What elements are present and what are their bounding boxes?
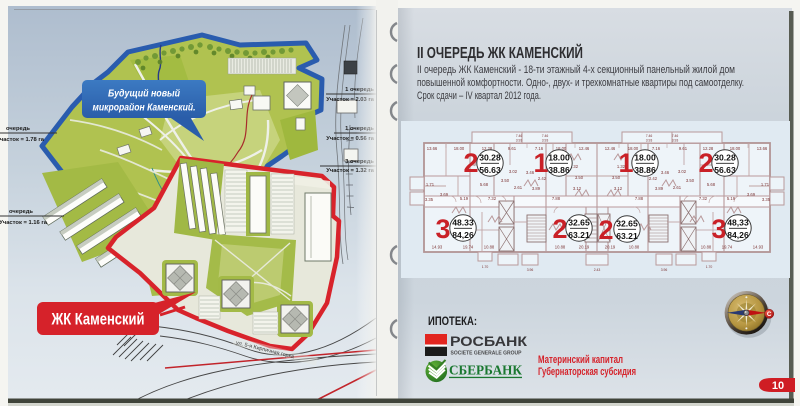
svg-text:18.00: 18.00 <box>548 153 570 163</box>
svg-text:1.71: 1.71 <box>426 182 435 187</box>
svg-text:C: C <box>767 311 772 318</box>
svg-text:32.65: 32.65 <box>616 219 638 229</box>
svg-text:3.02: 3.02 <box>678 169 687 174</box>
svg-text:2: 2 <box>698 148 713 178</box>
svg-text:3: 3 <box>435 214 450 244</box>
svg-text:14.93: 14.93 <box>432 245 443 250</box>
svg-text:1.71: 1.71 <box>761 182 770 187</box>
svg-text:9.61: 9.61 <box>508 146 517 151</box>
svg-text:2: 2 <box>598 215 613 245</box>
svg-text:3.50: 3.50 <box>575 175 584 180</box>
svg-text:РОСБАНК: РОСБАНК <box>450 334 528 349</box>
svg-text:84,26: 84,26 <box>727 230 749 240</box>
svg-text:Губернаторская субсидия: Губернаторская субсидия <box>538 366 636 378</box>
svg-text:3.93: 3.93 <box>672 139 679 143</box>
svg-text:12.46: 12.46 <box>605 146 616 151</box>
svg-text:3.93: 3.93 <box>646 139 653 143</box>
svg-text:7.46: 7.46 <box>516 134 523 138</box>
svg-text:12.46: 12.46 <box>579 146 590 151</box>
svg-text:3: 3 <box>711 214 726 244</box>
svg-text:3.89: 3.89 <box>532 186 541 191</box>
svg-text:7.46: 7.46 <box>646 134 653 138</box>
svg-text:Срок сдачи – IV квартал 2012 г: Срок сдачи – IV квартал 2012 года. <box>417 90 541 102</box>
svg-text:5.19: 5.19 <box>460 196 469 201</box>
svg-text:повышенной комфортности. Одно-: повышенной комфортности. Одно-, двух- и … <box>417 77 744 89</box>
svg-text:3.69: 3.69 <box>747 192 756 197</box>
svg-text:Участок = 1.16 га: Участок = 1.16 га <box>0 220 48 226</box>
svg-text:очередь: очередь <box>6 126 30 132</box>
svg-text:3.96: 3.96 <box>527 268 534 272</box>
svg-text:II очередь ЖК Каменский - 18-т: II очередь ЖК Каменский - 18-ти этажный … <box>417 64 735 76</box>
svg-text:20.19: 20.19 <box>579 245 590 250</box>
svg-text:3.12: 3.12 <box>573 186 582 191</box>
svg-text:30.28: 30.28 <box>479 153 501 163</box>
svg-text:32.65: 32.65 <box>568 218 590 228</box>
svg-text:5.68: 5.68 <box>707 182 716 187</box>
svg-text:84,26: 84,26 <box>452 230 474 240</box>
svg-text:2: 2 <box>463 148 478 178</box>
svg-text:56.63: 56.63 <box>714 165 736 175</box>
svg-text:63.21: 63.21 <box>616 231 638 241</box>
svg-text:3.46: 3.46 <box>661 170 670 175</box>
svg-text:2.43: 2.43 <box>594 268 601 272</box>
svg-text:II ОЧЕРЕДЬ ЖК КАМЕНСКИЙ: II ОЧЕРЕДЬ ЖК КАМЕНСКИЙ <box>417 44 583 62</box>
svg-text:SOCIETE GENERALE GROUP: SOCIETE GENERALE GROUP <box>451 351 523 357</box>
svg-text:2.61: 2.61 <box>514 185 523 190</box>
svg-text:7.46: 7.46 <box>672 134 679 138</box>
svg-text:13.66: 13.66 <box>427 146 438 151</box>
svg-text:микрорайон Каменский.: микрорайон Каменский. <box>93 102 196 114</box>
svg-text:2.42: 2.42 <box>649 176 658 181</box>
svg-text:5.19: 5.19 <box>727 196 736 201</box>
svg-text:18.00: 18.00 <box>634 153 656 163</box>
svg-text:10: 10 <box>772 380 784 392</box>
svg-text:3.12: 3.12 <box>614 186 623 191</box>
svg-text:3.89: 3.89 <box>655 186 664 191</box>
svg-text:ИПОТЕКА:: ИПОТЕКА: <box>428 316 477 328</box>
svg-text:63.21: 63.21 <box>568 230 590 240</box>
svg-text:3.35: 3.35 <box>425 197 434 202</box>
svg-text:7.32: 7.32 <box>488 196 497 201</box>
svg-text:19.74: 19.74 <box>722 245 733 250</box>
svg-text:10.88: 10.88 <box>555 245 566 250</box>
svg-text:38.86: 38.86 <box>634 165 656 175</box>
svg-text:38.86: 38.86 <box>548 165 570 175</box>
svg-text:3.35: 3.35 <box>762 197 771 202</box>
svg-text:3.02: 3.02 <box>509 169 518 174</box>
svg-text:14.93: 14.93 <box>753 245 764 250</box>
svg-text:7.88: 7.88 <box>635 196 644 201</box>
svg-text:10.88: 10.88 <box>629 245 640 250</box>
svg-text:1: 1 <box>618 148 633 178</box>
svg-text:Будущий новый: Будущий новый <box>108 88 180 100</box>
svg-text:7.16: 7.16 <box>652 146 661 151</box>
svg-text:3.93: 3.93 <box>542 139 549 143</box>
svg-text:2.61: 2.61 <box>673 185 682 190</box>
svg-text:1.70: 1.70 <box>482 265 489 269</box>
svg-text:10.88: 10.88 <box>484 245 495 250</box>
svg-text:СБЕРБАНК: СБЕРБАНК <box>449 364 523 379</box>
svg-text:48.33: 48.33 <box>452 218 474 228</box>
svg-text:3.96: 3.96 <box>661 268 668 272</box>
svg-text:10.88: 10.88 <box>701 245 712 250</box>
svg-text:5.68: 5.68 <box>480 182 489 187</box>
svg-text:1.70: 1.70 <box>706 265 713 269</box>
svg-text:Участок = 1.78 га: Участок = 1.78 га <box>0 137 45 143</box>
svg-text:7.88: 7.88 <box>552 196 561 201</box>
svg-text:2: 2 <box>552 214 567 244</box>
svg-text:48,33: 48,33 <box>727 218 749 228</box>
svg-text:3.69: 3.69 <box>440 192 449 197</box>
svg-text:3.50: 3.50 <box>686 178 695 183</box>
svg-text:13.66: 13.66 <box>757 146 768 151</box>
svg-text:3.93: 3.93 <box>516 139 523 143</box>
svg-text:3.50: 3.50 <box>501 178 510 183</box>
svg-text:18.00: 18.00 <box>730 146 741 151</box>
svg-text:ЖК Каменский: ЖК Каменский <box>51 311 145 329</box>
svg-text:30.28: 30.28 <box>714 153 736 163</box>
svg-text:20.19: 20.19 <box>605 245 616 250</box>
svg-text:7.32: 7.32 <box>699 196 708 201</box>
svg-text:Материнский капитал: Материнский капитал <box>538 354 623 366</box>
svg-text:7.46: 7.46 <box>542 134 549 138</box>
svg-text:56.63: 56.63 <box>479 165 501 175</box>
svg-text:19.74: 19.74 <box>463 245 474 250</box>
svg-text:9.61: 9.61 <box>679 146 688 151</box>
svg-text:очередь: очередь <box>9 209 33 215</box>
